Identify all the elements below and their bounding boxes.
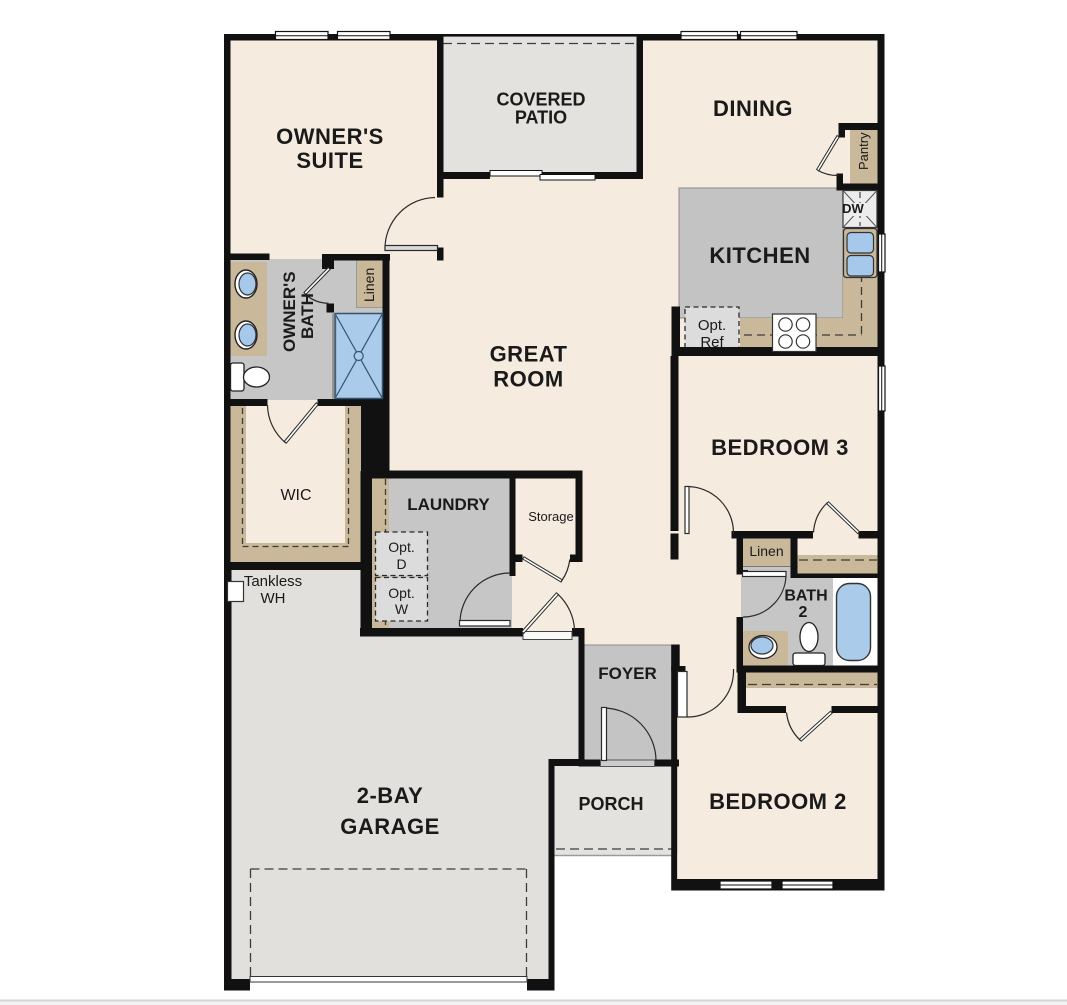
svg-text:Storage: Storage <box>528 509 574 524</box>
svg-text:WH: WH <box>261 590 286 607</box>
svg-text:LAUNDRY: LAUNDRY <box>407 495 490 514</box>
svg-text:BEDROOM 3: BEDROOM 3 <box>711 435 849 460</box>
svg-text:2: 2 <box>799 604 808 621</box>
svg-text:SUITE: SUITE <box>296 148 363 173</box>
svg-text:Pantry: Pantry <box>856 132 871 170</box>
svg-text:DW: DW <box>842 201 864 216</box>
svg-text:BATH: BATH <box>298 293 317 339</box>
svg-text:FOYER: FOYER <box>598 664 657 683</box>
svg-text:BATH: BATH <box>784 588 827 605</box>
svg-text:DINING: DINING <box>713 96 793 121</box>
svg-text:COVERED: COVERED <box>496 90 585 110</box>
svg-text:Linen: Linen <box>749 543 783 559</box>
svg-text:Tankless: Tankless <box>244 573 302 590</box>
svg-text:Opt.: Opt. <box>388 539 414 555</box>
svg-text:Opt.: Opt. <box>698 317 726 334</box>
svg-text:Ref: Ref <box>700 334 724 351</box>
svg-text:GARAGE: GARAGE <box>340 814 440 839</box>
svg-text:PORCH: PORCH <box>578 794 643 814</box>
svg-text:W: W <box>395 601 409 617</box>
svg-text:OWNER'S: OWNER'S <box>280 271 299 352</box>
svg-text:ROOM: ROOM <box>493 366 563 391</box>
svg-text:D: D <box>396 556 406 572</box>
svg-text:GREAT: GREAT <box>490 342 568 367</box>
svg-text:OWNER'S: OWNER'S <box>276 124 384 149</box>
svg-text:KITCHEN: KITCHEN <box>709 243 810 268</box>
svg-text:Opt.: Opt. <box>388 585 414 601</box>
svg-text:BEDROOM 2: BEDROOM 2 <box>709 789 847 814</box>
svg-text:2-BAY: 2-BAY <box>357 783 424 808</box>
svg-text:WIC: WIC <box>280 487 311 504</box>
svg-text:Linen: Linen <box>361 268 377 302</box>
svg-text:PATIO: PATIO <box>515 108 567 128</box>
